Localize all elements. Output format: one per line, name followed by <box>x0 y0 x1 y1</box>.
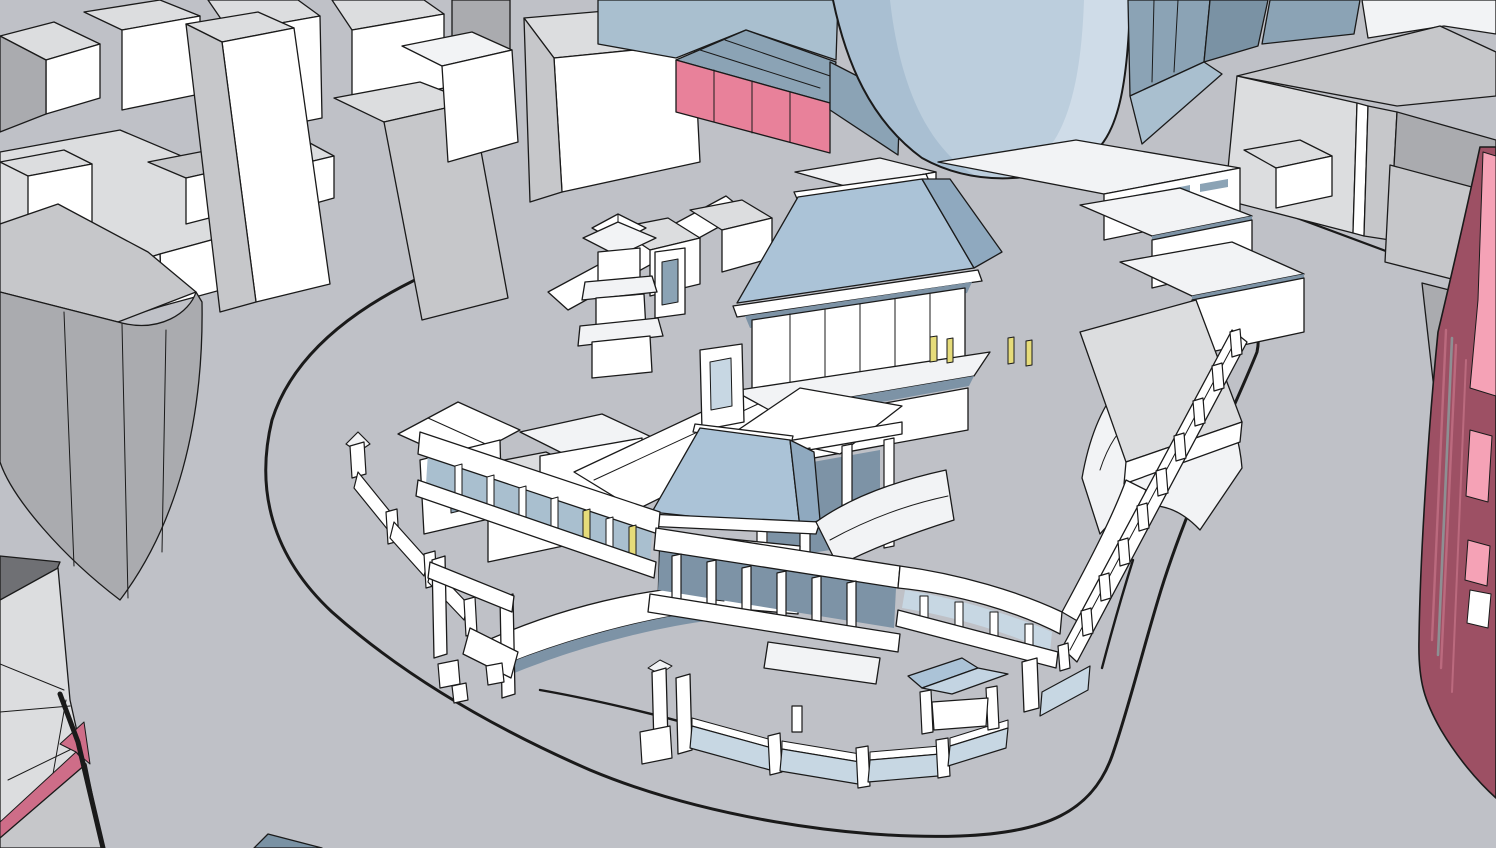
fence-east-post-6 <box>1156 468 1168 496</box>
court-west-door <box>710 358 732 410</box>
pagoda-base <box>592 336 652 378</box>
fence-east-post-8 <box>1193 398 1205 426</box>
yellow-column-3 <box>1008 337 1014 364</box>
yellow-column-1 <box>930 336 937 362</box>
fence-south-post-3 <box>936 738 950 778</box>
model-canvas[interactable] <box>0 0 1496 848</box>
fence-east-post-7 <box>1174 433 1186 461</box>
viewport-3d[interactable] <box>0 0 1496 848</box>
fence-east-post-5 <box>1137 503 1149 531</box>
gate-pavilion-post-2 <box>986 686 999 730</box>
gate-south-post-b <box>676 674 692 754</box>
gate-south-block <box>640 726 672 764</box>
tower-pink-panel-a <box>1466 430 1492 502</box>
tower-pink-panel-white <box>1467 590 1491 628</box>
tower-pink-panel-b <box>1465 540 1490 586</box>
gate-west-block-1 <box>438 660 460 688</box>
fence-east-post-1 <box>1058 643 1070 671</box>
fence-post-round <box>792 706 802 732</box>
city-box-d2-front <box>442 50 518 162</box>
fence-east-post-3 <box>1099 573 1111 601</box>
gate-pavilion-wall <box>932 698 988 730</box>
gate-west-block-2 <box>486 663 504 685</box>
yellow-column-2 <box>947 338 953 363</box>
yellow-column-4 <box>1026 340 1032 366</box>
temple-tower-annex-window <box>662 259 678 305</box>
gate-pavilion-post-1 <box>920 690 933 734</box>
fence-post-tall-east <box>1022 658 1039 712</box>
fence-east-post-2 <box>1081 608 1093 636</box>
fence-east-post-4 <box>1118 538 1130 566</box>
fence-east-post-9 <box>1212 363 1224 391</box>
fence-east-post-10 <box>1230 329 1242 357</box>
gate-west-block-3 <box>452 683 468 703</box>
